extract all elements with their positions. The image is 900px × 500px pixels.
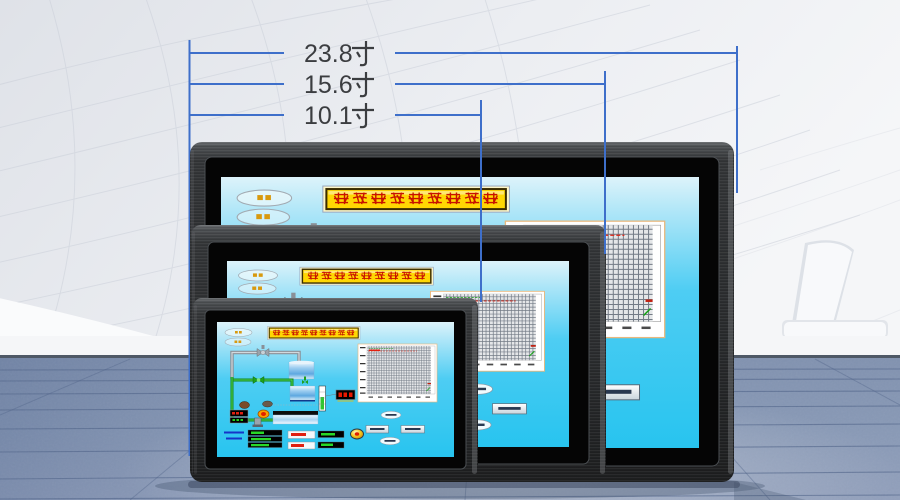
svg-text:10.1: 10.1: [304, 102, 353, 130]
svg-text:15.6: 15.6: [304, 71, 353, 99]
svg-text:23.8: 23.8: [304, 40, 353, 68]
